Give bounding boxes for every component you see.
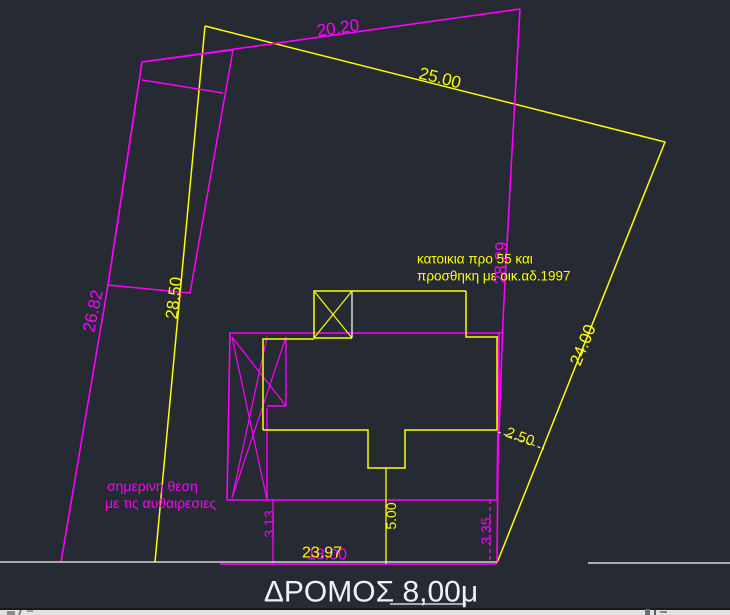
statusbar-right-tick-icon (654, 610, 656, 615)
dim-text-20-20: 20.20 (316, 16, 361, 41)
dim-text-2-50: 2.50 (503, 424, 536, 450)
dim-text-25-00: 25.00 (417, 64, 463, 93)
statusbar-right-dash-icon (660, 611, 667, 613)
dim-text-24-00: 24.00 (566, 322, 600, 369)
parcel-magenta-right-side (497, 9, 520, 563)
dim-text-23-97: 23.97 (302, 545, 342, 562)
cad-drawing-area[interactable]: 20.2025.0026.8228.5028.2924.002.503.135.… (0, 0, 730, 608)
neighbor-strip-divider (142, 80, 223, 93)
statusbar-left-dash-icon (27, 610, 33, 612)
building-yellow-right-upper-step (466, 291, 498, 337)
note-simerini-line2: με τις αυθαιρεσιες (105, 495, 216, 511)
statusbar-right-mark-icon (645, 609, 650, 615)
building-magenta-left (227, 333, 230, 500)
dim-text-3-13: 3.13 (261, 510, 277, 537)
dim-text-26-82: 26.82 (79, 288, 106, 334)
building-magenta-diagonal-b (232, 337, 286, 498)
building-yellow-bottom-notch (263, 430, 497, 468)
statusbar-left-mark-icon (7, 611, 15, 615)
statusbar-scroll-strip[interactable] (0, 608, 730, 615)
note-simerini-line1: σημερινη θεση (107, 478, 198, 494)
dim-text-28-50: 28.50 (162, 276, 186, 321)
note-katoikia-line1: κατοικια προ 55 και (417, 252, 533, 267)
dim-text-5-00: 5.00 (383, 502, 399, 529)
parcel-yellow-vertex-tick (205, 26, 221, 30)
statusbar-left-slash-icon (18, 610, 22, 615)
parcel-yellow-side-25-24 (205, 26, 665, 563)
cad-canvas[interactable]: 20.2025.0026.8228.5028.2924.002.503.135.… (0, 0, 730, 608)
road-label: ΔΡΟΜΟΣ 8,00μ (264, 576, 478, 609)
dim-text-3-35: 3.35 (478, 517, 494, 544)
neighbor-strip-outline (108, 50, 233, 293)
note-katoikia-line2: προσθηκη με οικ.αδ.1997 (417, 269, 571, 284)
